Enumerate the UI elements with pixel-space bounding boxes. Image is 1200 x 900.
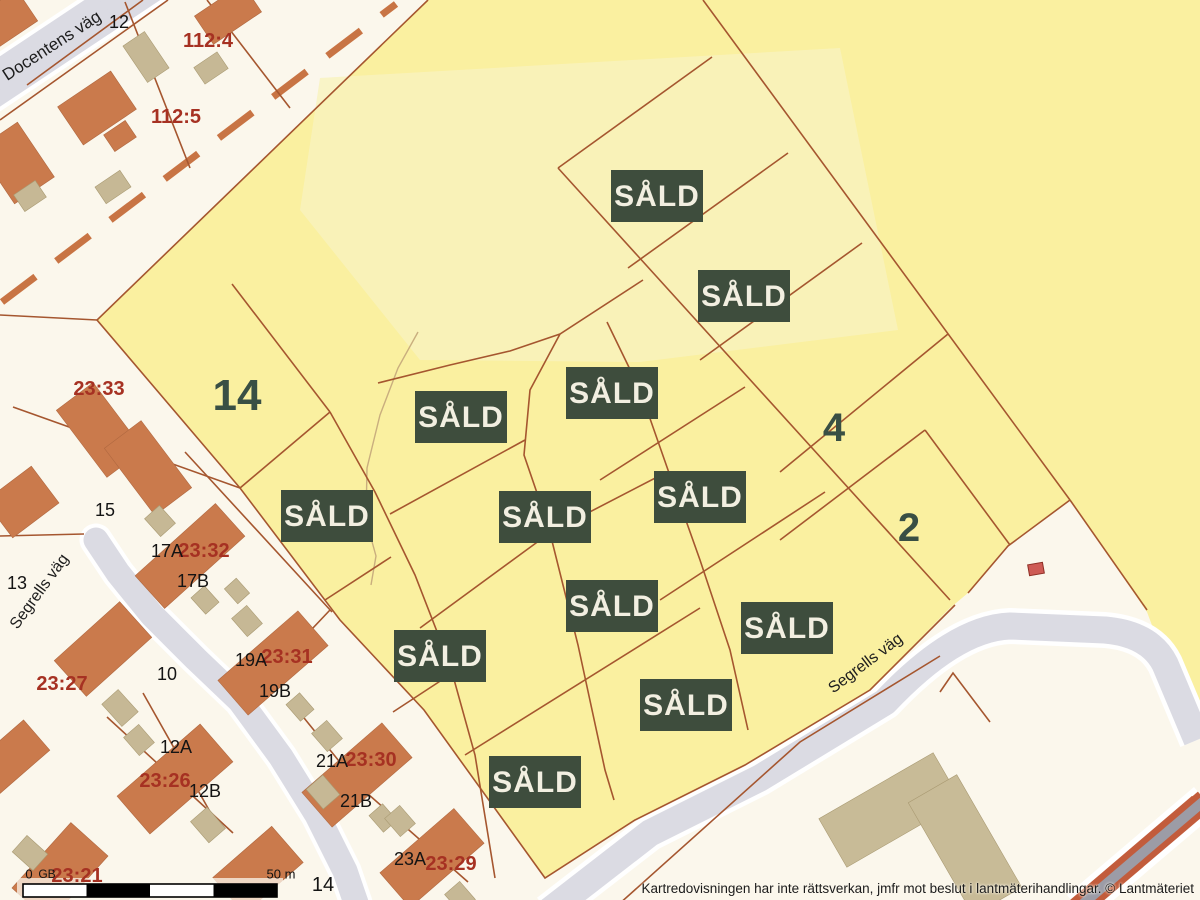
parcel-label-112-5: 112:5 bbox=[151, 107, 201, 127]
sold-badge: SÅLD bbox=[415, 391, 507, 443]
red-marker-building bbox=[1028, 562, 1045, 575]
plot-number-14: 14 bbox=[213, 374, 262, 418]
parcel-label-23-29: 23:29 bbox=[425, 854, 476, 874]
development-area-light-patch bbox=[300, 48, 898, 362]
sold-badge: SÅLD bbox=[741, 602, 833, 654]
house-number-21a: 21A bbox=[316, 752, 348, 770]
house-number-12: 12 bbox=[109, 13, 129, 31]
parcel-label-23-31: 23:31 bbox=[261, 647, 312, 667]
cadastral-map[interactable]: Docentens väg Segrells väg Segrells väg … bbox=[0, 0, 1200, 900]
sold-badge: SÅLD bbox=[698, 270, 790, 322]
sold-badge: SÅLD bbox=[566, 367, 658, 419]
sold-badge: SÅLD bbox=[611, 170, 703, 222]
parcel-label-23-33: 23:33 bbox=[73, 379, 124, 399]
parcel-label-23-27: 23:27 bbox=[36, 674, 87, 694]
house-number-17a: 17A bbox=[151, 542, 183, 560]
house-number-14: 14 bbox=[312, 875, 334, 895]
sold-badge: SÅLD bbox=[566, 580, 658, 632]
parcel-label-112-4: 112:4 bbox=[183, 31, 233, 51]
parcel-label-23-21: 23:21 bbox=[51, 866, 102, 886]
sold-badge: SÅLD bbox=[394, 630, 486, 682]
house-number-12b: 12B bbox=[189, 782, 221, 800]
house-number-10: 10 bbox=[157, 665, 177, 683]
sold-badge: SÅLD bbox=[499, 491, 591, 543]
house-number-23a: 23A bbox=[394, 850, 426, 868]
map-disclaimer: Kartredovisningen har inte rättsverkan, … bbox=[642, 881, 1194, 896]
sold-badge: SÅLD bbox=[654, 471, 746, 523]
parcel-label-23-32: 23:32 bbox=[178, 541, 229, 561]
house-number-gb: GB bbox=[38, 868, 55, 880]
plot-number-2: 2 bbox=[898, 508, 920, 548]
map-canvas bbox=[0, 0, 1200, 900]
scale-start-label: 0 bbox=[25, 868, 32, 881]
house-number-12a: 12A bbox=[160, 738, 192, 756]
sold-badge: SÅLD bbox=[489, 756, 581, 808]
parcel-label-23-26: 23:26 bbox=[139, 771, 190, 791]
sold-badge: SÅLD bbox=[281, 490, 373, 542]
scale-end-label: 50 m bbox=[267, 868, 296, 881]
house-number-21b: 21B bbox=[340, 792, 372, 810]
house-number-19a: 19A bbox=[235, 651, 267, 669]
parcel-label-23-30: 23:30 bbox=[345, 750, 396, 770]
house-number-17b: 17B bbox=[177, 572, 209, 590]
house-number-13: 13 bbox=[7, 574, 27, 592]
house-number-19b: 19B bbox=[259, 682, 291, 700]
plot-number-4: 4 bbox=[823, 408, 845, 448]
house-number-15: 15 bbox=[95, 501, 115, 519]
sold-badge: SÅLD bbox=[640, 679, 732, 731]
